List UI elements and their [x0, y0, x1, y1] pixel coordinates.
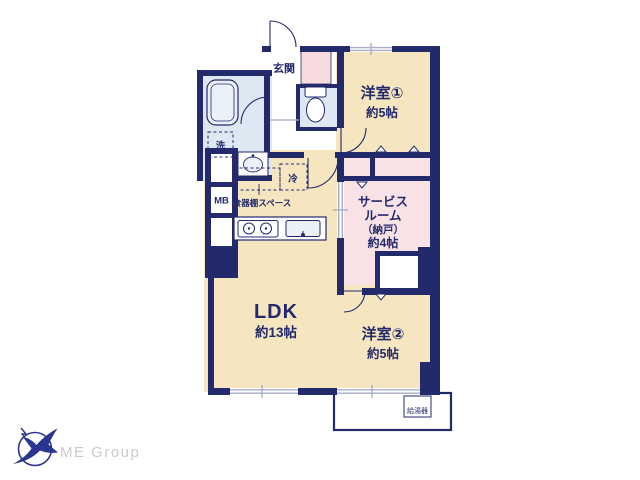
- ldk-label: LDK: [254, 301, 298, 323]
- wall-corridor-bottom: [264, 152, 304, 158]
- wall-corridor-left: [264, 70, 270, 158]
- burner-dot: [265, 227, 267, 229]
- logo-text: ME Group: [60, 444, 140, 461]
- bedroom2-size: 約5帖: [367, 346, 399, 361]
- service-room-label-1: サービス: [358, 194, 408, 209]
- entrance-label: 玄関: [273, 61, 295, 75]
- balcony-outline: [334, 393, 451, 430]
- bedroom1-size: 約5帖: [366, 105, 398, 120]
- wall-bedroom1-left: [337, 46, 344, 128]
- fridge-label: 冷: [288, 173, 298, 185]
- floor-plan-drawing: 給湯器 MB: [0, 0, 640, 480]
- wall-closet2-left: [375, 251, 380, 288]
- toilet-tank: [305, 87, 326, 97]
- bedroom1-label: 洋室①: [361, 84, 404, 102]
- burner-dot: [248, 227, 250, 229]
- wall-bath-left: [197, 70, 203, 181]
- meter-box-column: MB: [211, 154, 232, 246]
- entrance-door: [270, 21, 296, 47]
- wall-right-jog-bottom: [420, 362, 434, 392]
- bedroom2-label: 洋室②: [362, 325, 405, 343]
- cupboard-label: 食器棚スペース: [233, 198, 291, 208]
- wall-closet-strip-bottom: [344, 176, 430, 181]
- bedroom2-closet: [380, 256, 418, 288]
- meter-box-label: MB: [214, 196, 229, 207]
- toilet-bowl: [307, 98, 325, 122]
- bedroom1-floor: [336, 46, 436, 158]
- service-room-size: 約4帖: [368, 235, 399, 250]
- logo: ME Group: [13, 428, 140, 466]
- water-heater-label: 給湯器: [407, 406, 428, 415]
- wall-toilet-bottom: [296, 127, 337, 131]
- washer-label: 洗: [216, 140, 226, 152]
- window-gap: [230, 388, 298, 395]
- shoe-closet: [301, 50, 331, 84]
- niche-3: [211, 218, 232, 246]
- vanity-basin: [244, 157, 263, 172]
- niche-1: [211, 154, 232, 182]
- service-room-label-2: ルーム: [364, 209, 402, 223]
- wall-closet2-top: [375, 251, 418, 256]
- vanity-tap: [252, 154, 255, 157]
- floor-plan-page: 給湯器 MB: [0, 0, 640, 480]
- service-room-label-3: （納戸）: [362, 223, 404, 236]
- wall-bath-top: [197, 70, 272, 76]
- wall-closet-divider: [370, 152, 375, 181]
- window-gap: [337, 388, 420, 395]
- wall-ldk-left: [208, 278, 214, 395]
- wall-right: [430, 46, 440, 392]
- wall-bedroom1-bottom: [335, 152, 430, 158]
- ldk-size: 約13帖: [255, 324, 298, 340]
- balcony: 給湯器: [334, 393, 451, 430]
- wall-toilet-left: [296, 84, 300, 131]
- wall-right-jog-service: [418, 247, 434, 290]
